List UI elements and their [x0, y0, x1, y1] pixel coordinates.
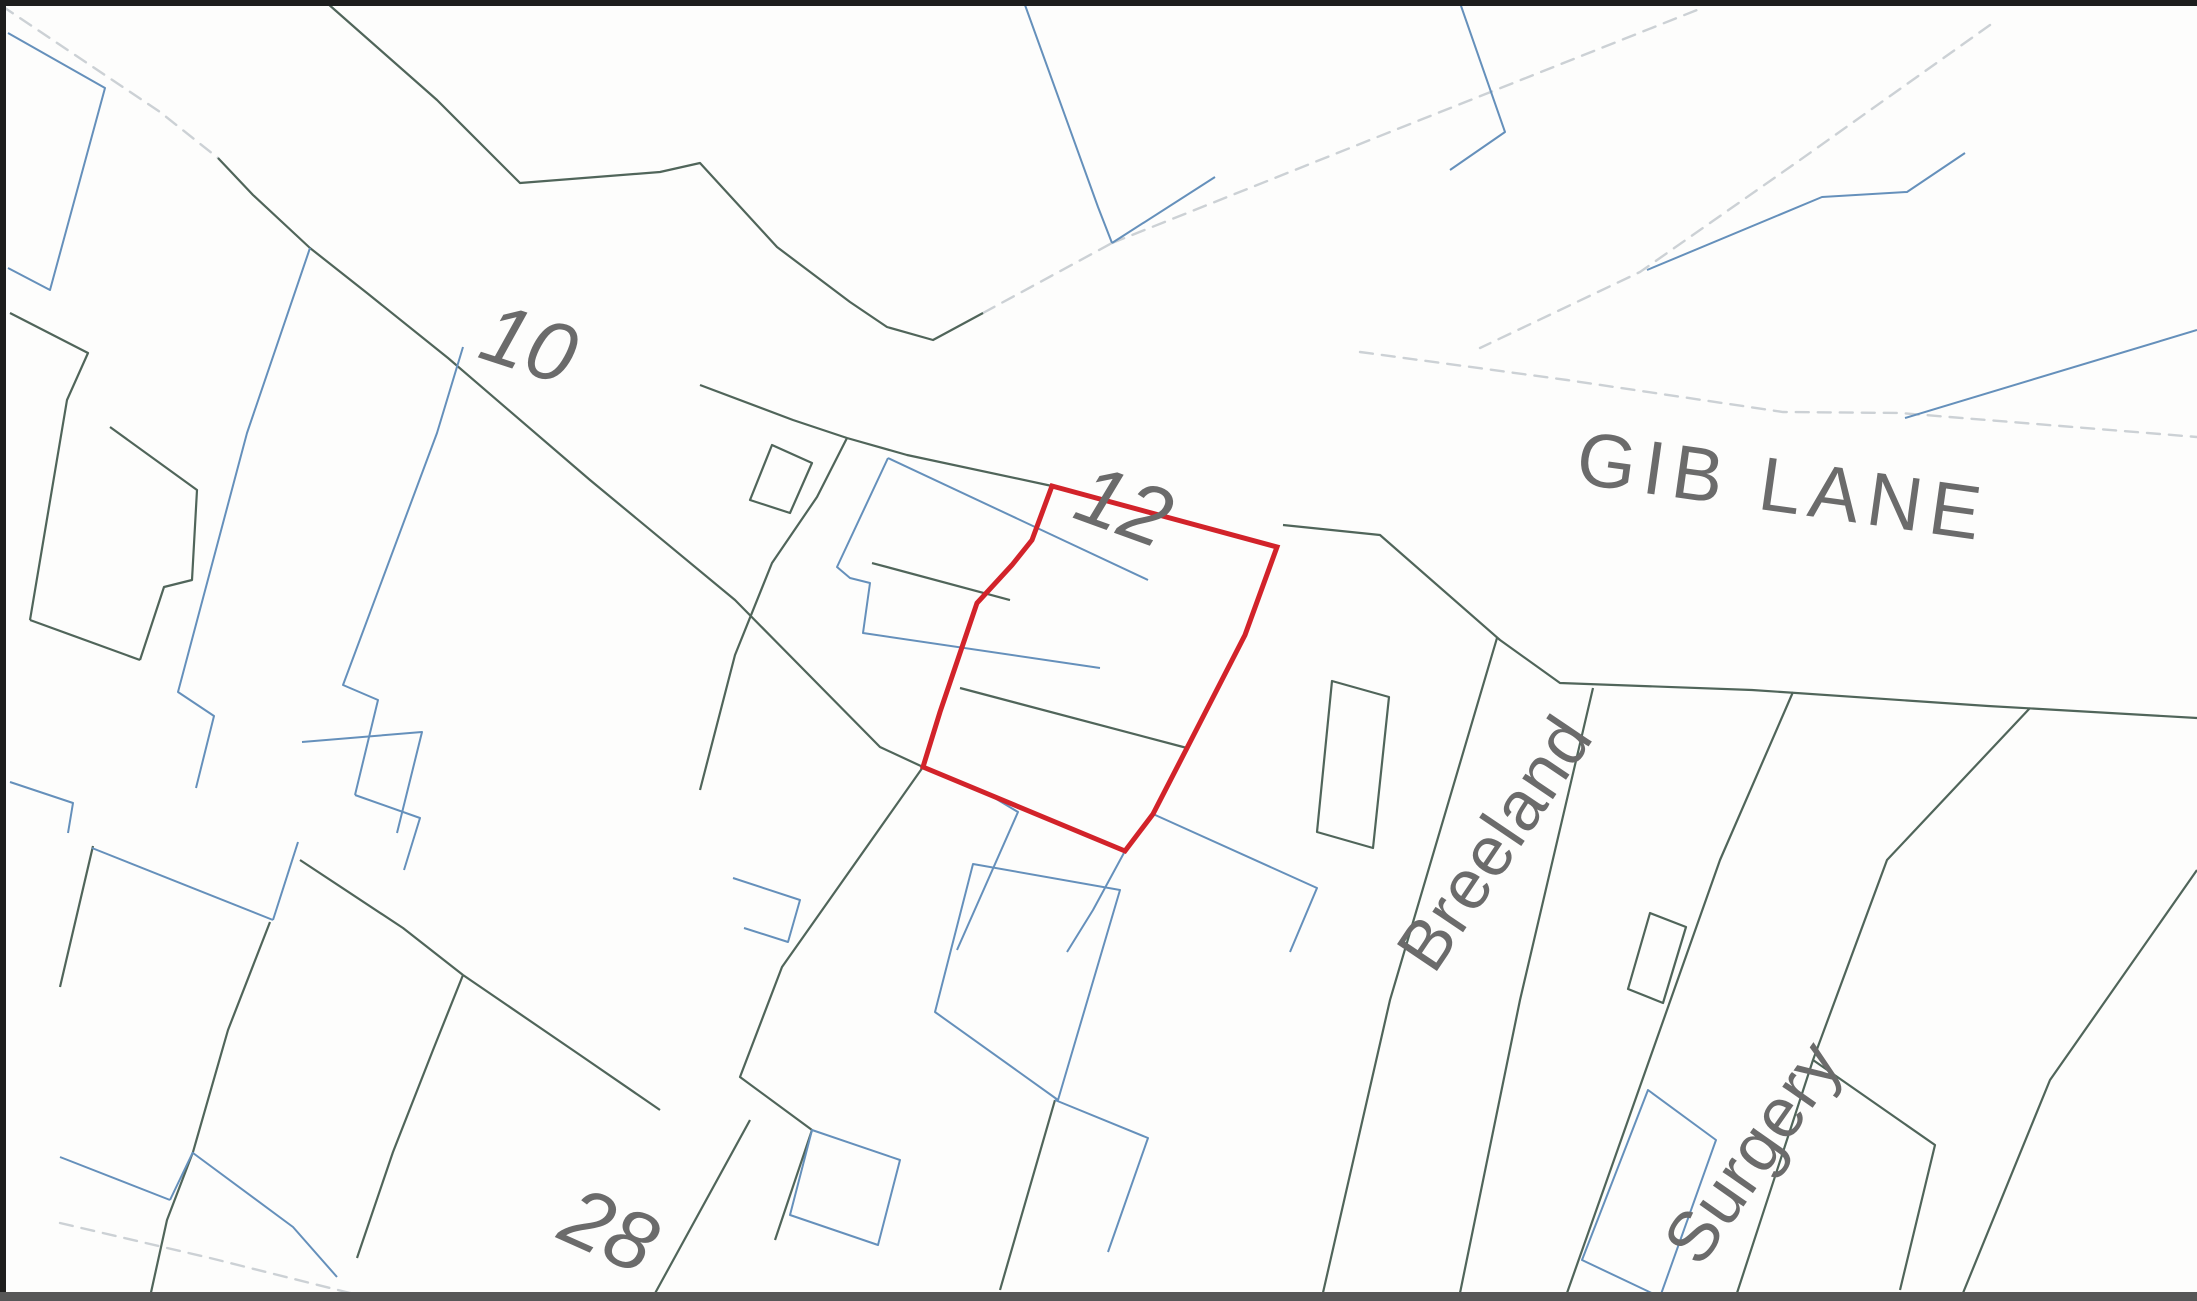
map-frame-bottom-border — [0, 1292, 2197, 1301]
map-frame-left-border — [0, 0, 6, 1301]
title-plan-map: 10 12 28 GIB LANE Breeland Surgery — [0, 0, 2197, 1301]
map-frame-top-border — [0, 0, 2197, 6]
map-canvas: 10 12 28 GIB LANE Breeland Surgery — [0, 0, 2197, 1301]
